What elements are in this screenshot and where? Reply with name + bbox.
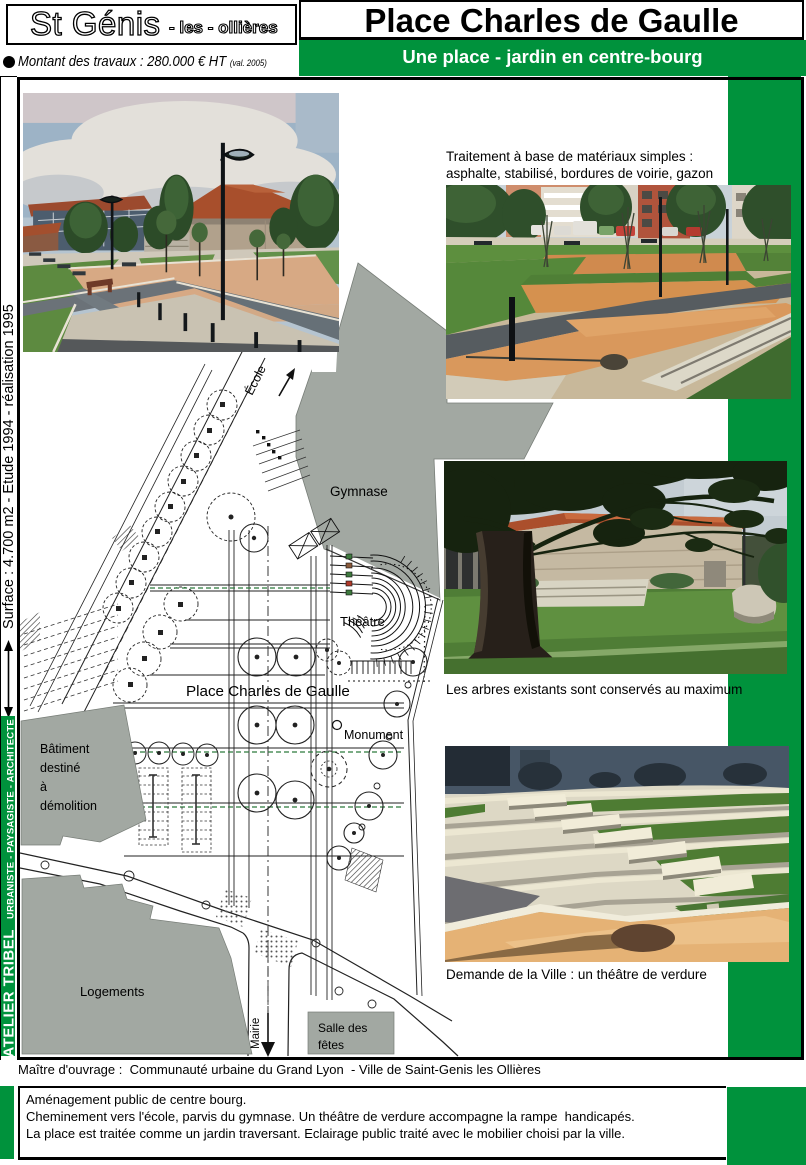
svg-text:fêtes: fêtes <box>318 1038 344 1052</box>
svg-text:à: à <box>40 780 47 794</box>
svg-text:- les - ollières: - les - ollières <box>169 18 278 37</box>
svg-text:Place Charles de Gaulle: Place Charles de Gaulle <box>186 683 350 700</box>
svg-text:destiné: destiné <box>40 761 80 775</box>
svg-text:St Génis: St Génis <box>30 6 161 42</box>
svg-text:École: École <box>241 363 269 398</box>
svg-text:Gymnase: Gymnase <box>330 484 388 499</box>
svg-text:démolition: démolition <box>40 799 97 813</box>
svg-text:Théâtre: Théâtre <box>340 614 385 629</box>
svg-text:Salle des: Salle des <box>318 1021 367 1035</box>
svg-text:Logements: Logements <box>80 984 145 999</box>
svg-text:Mairie: Mairie <box>250 1018 262 1049</box>
svg-text:Monument: Monument <box>344 728 404 742</box>
svg-text:Bâtiment: Bâtiment <box>40 742 90 756</box>
